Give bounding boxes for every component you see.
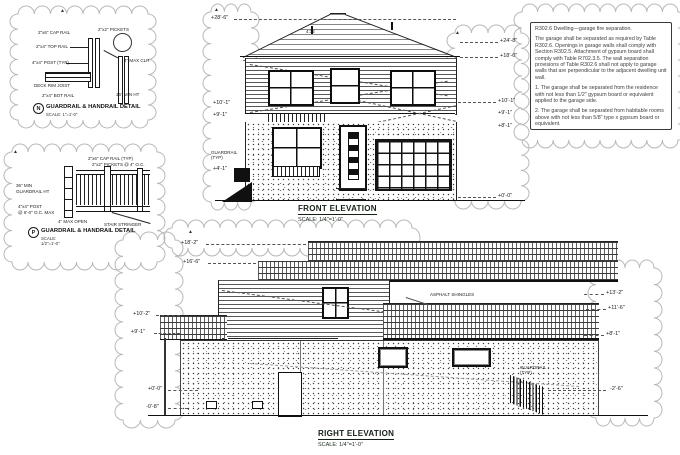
elevation-sheet: ▲ ▲ ▲ ▲ ▲ 2"x6" CAP RAIL 2"x4" TOP RAIL … [0,0,680,455]
elevation-marker: +10'-1" [213,100,230,106]
detail-annotation: 2"x2" PICKETS [98,27,129,32]
detail-annotation: GUARDRAIL HT [16,189,49,194]
guardrail-post [95,38,100,88]
detail-annotation: 4" MAX OPEN [58,219,87,224]
ridge-height-leader [234,19,456,20]
revision-triangle-icon: ▲ [60,9,65,14]
elevation-marker: +9'-1" [498,110,512,116]
detail-annotation: 2"x6" CAP RAIL (TYP) [88,156,133,161]
front-elevation-scale: SCALE: 1/4"=1'-0" [298,217,343,223]
detail-annotation: @ 6'-0" O.C. MAX [18,210,54,215]
foundation-vent [206,401,217,409]
elevation-marker: +9'-1" [131,329,145,335]
detail-annotation: 4"x4" POST [18,204,42,209]
detail-annotation: 2"x2" PICKETS @ 4" O.C. [92,162,145,167]
main-roof-upper [308,241,618,262]
roof-vent-stub [391,22,393,30]
detail-bubble [113,33,132,52]
elevation-marker: +0'-0" [148,386,162,392]
code-note-body: The garage shall be separated as require… [535,36,667,81]
detail-title: GUARDRAIL & HANDRAIL DETAIL [41,228,135,234]
elevation-marker: +9'-1" [213,112,227,118]
grade-line [215,200,525,201]
grade-line [148,415,648,416]
front-roof [243,14,457,57]
detail-annotation: 2"x4" TOP RAIL [36,44,68,49]
entry-door [339,125,367,191]
right-elevation-title: RIGHT ELEVATION [318,429,394,440]
detail-annotation: 2"x4" BOT RAIL [42,93,74,98]
elevation-marker: +4'-1" [213,166,227,172]
garage-roof [383,303,599,340]
grade-leader [168,390,198,391]
elevation-marker: -2'-6" [610,386,623,392]
elevation-marker: +16'-6" [183,259,200,265]
right-elevation-scale: SCALE: 1/4"=1'-0" [318,442,363,448]
lower-window [272,127,322,169]
basement-window [452,348,491,367]
detail-annotation: 36" MIN [16,183,32,188]
entry-steps [336,188,366,200]
marker-leader [206,244,306,245]
guardrail-label: (TYP) [211,155,223,160]
upper-window-left [268,70,314,106]
detail-annotation: DECK RIM JOIST [34,83,70,88]
rail-post-section [64,166,73,218]
marker-leader [208,263,256,264]
marker-leader [460,42,498,43]
code-note-block: R302.6 Dwelling—garage fire separation. … [530,22,672,130]
marker-leader [584,294,604,295]
detail-tag: P [28,227,39,238]
second-floor-wall-side [218,280,390,346]
deck-rim [45,72,91,82]
garage-door [375,139,452,191]
detail-annotation: 2"x6" CAP RAIL [38,30,70,35]
elevation-marker: +18'-6" [500,53,517,59]
leader-line [70,47,88,48]
upper-window-right [390,70,436,106]
revision-triangle-icon: ▲ [13,150,18,155]
detail-scale: SCALE: 1"=1'-0" [46,112,77,117]
grade-leader [548,390,606,391]
marker-leader [458,197,496,198]
elevation-marker: +28'-6" [211,15,228,21]
elevation-marker: +13'-2" [606,290,623,296]
basement-window [378,347,408,368]
code-note-item-1: 1. The garage shall be separated from th… [535,85,667,104]
marker-leader [168,408,188,409]
elevation-marker: +0'-0" [498,193,512,199]
eave-fascia [240,56,460,57]
revision-triangle-icon: ▲ [188,230,193,235]
porch-post [164,338,166,415]
revision-triangle-icon: ▲ [214,8,219,13]
foundation-vent [252,401,263,409]
roof-ridge [330,13,346,14]
detail-tag: N [33,103,44,114]
marker-leader [458,102,496,103]
main-roof-lower [258,261,618,282]
window-planter-rail [272,166,320,177]
code-note-heading: R302.6 Dwelling—garage fire separation. [535,26,667,32]
marker-leader [586,309,606,310]
revision-triangle-icon: ▲ [455,31,460,36]
door-lites [348,132,359,180]
marker-leader [156,315,180,316]
porch-roof [160,315,227,340]
elevation-marker: +8'-1" [606,331,620,337]
marker-leader [584,335,604,336]
front-stair-block [234,168,250,182]
elevation-marker: +8'-1" [498,123,512,129]
front-elevation-title: FRONT ELEVATION [298,204,377,215]
detail-annotation: 36" MIN HT [116,92,139,97]
roof-pitch-label: 4:12 [306,29,315,34]
revision-cloud-right-elev-right [588,260,662,426]
leader-line [66,63,88,64]
marker-leader [460,57,498,58]
marker-leader [154,333,180,334]
basement-door [278,372,302,417]
shingle-annotation: ASPHALT SHINGLES [430,292,474,297]
detail-annotation: STAIR STRINGER [104,222,141,227]
elevation-marker: +24'-8" [500,38,517,44]
stair-rail-label: (TYP) [520,370,532,375]
elevation-marker: +10'-1" [498,98,515,104]
detail-annotation: 4"x4" POST (TYP) [32,60,69,65]
elevation-marker: +18'-2" [181,240,198,246]
upper-window-center [330,68,360,104]
detail-scale: 1/2"=1'-0" [41,241,60,246]
elevation-marker: +10'-2" [133,311,150,317]
detail-title: GUARDRAIL & HANDRAIL DETAIL [46,104,140,110]
bottom-rail [76,206,150,212]
code-note-item-2: 2. The garage shall be separated from ha… [535,108,667,127]
detail-annotation: 4" MAX CLR [124,58,149,63]
elevation-marker: +11'-6" [608,305,625,311]
elevation-marker: -0'-8" [146,404,159,410]
frieze-band [268,114,326,122]
